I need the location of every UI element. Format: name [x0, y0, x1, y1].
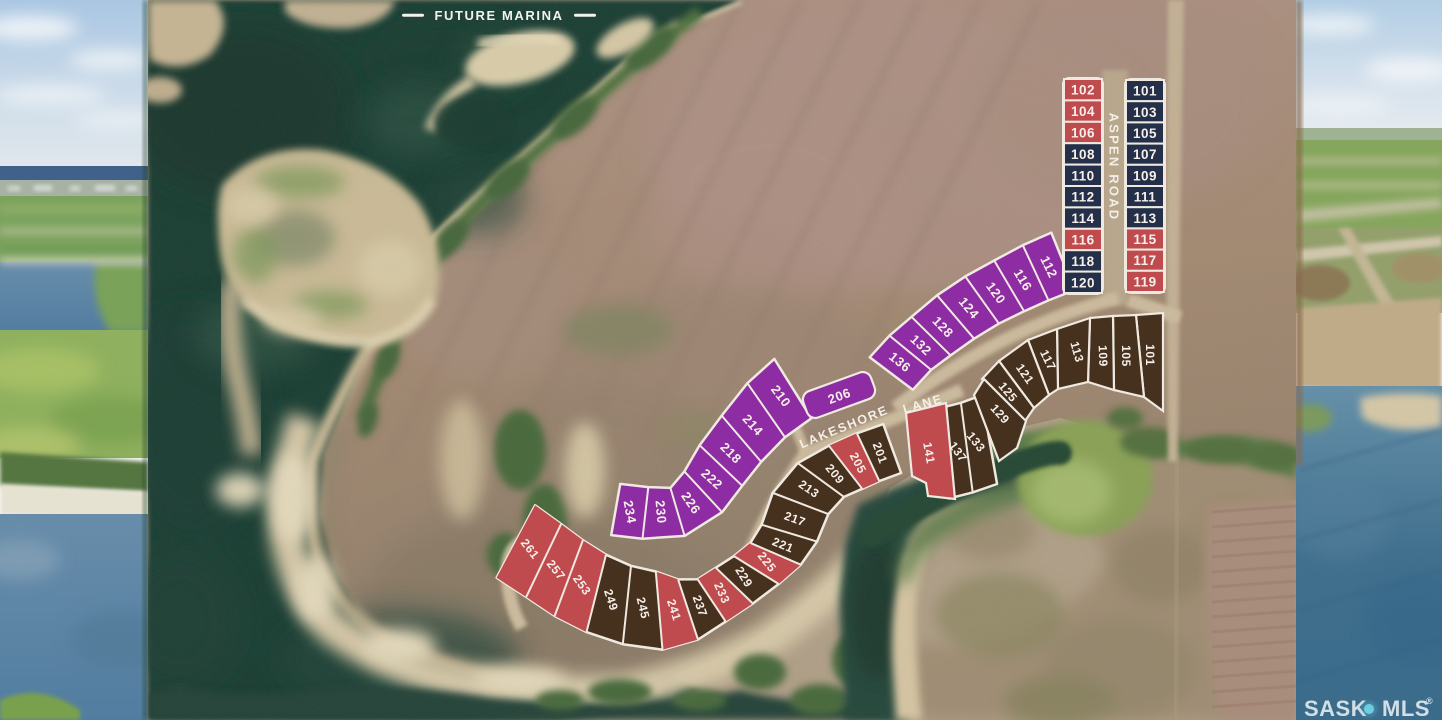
svg-text:105: 105	[1133, 126, 1157, 141]
svg-text:117: 117	[1133, 253, 1156, 268]
svg-text:109: 109	[1096, 345, 1111, 367]
svg-text:116: 116	[1071, 233, 1094, 248]
svg-text:MLS: MLS	[1382, 696, 1430, 720]
svg-text:107: 107	[1133, 147, 1157, 162]
svg-text:105: 105	[1119, 345, 1133, 367]
svg-text:118: 118	[1071, 254, 1094, 269]
svg-text:FUTURE MARINA: FUTURE MARINA	[434, 8, 563, 23]
svg-text:120: 120	[1071, 275, 1095, 290]
svg-text:111: 111	[1134, 190, 1157, 205]
svg-text:ASPEN ROAD: ASPEN ROAD	[1107, 113, 1122, 222]
svg-text:106: 106	[1071, 126, 1095, 141]
svg-text:102: 102	[1071, 83, 1095, 98]
svg-text:103: 103	[1133, 105, 1157, 120]
svg-text:230: 230	[653, 500, 670, 525]
svg-text:104: 104	[1071, 104, 1095, 119]
svg-text:115: 115	[1133, 232, 1156, 247]
svg-text:SASK: SASK	[1304, 696, 1367, 720]
svg-text:109: 109	[1133, 168, 1157, 183]
svg-text:112: 112	[1071, 190, 1094, 205]
svg-text:®: ®	[1426, 696, 1433, 706]
svg-text:114: 114	[1071, 211, 1094, 226]
svg-text:119: 119	[1133, 274, 1156, 289]
svg-text:101: 101	[1143, 344, 1157, 366]
svg-text:101: 101	[1133, 84, 1157, 99]
svg-text:110: 110	[1071, 168, 1094, 183]
svg-text:113: 113	[1133, 211, 1156, 226]
svg-text:108: 108	[1071, 147, 1095, 162]
